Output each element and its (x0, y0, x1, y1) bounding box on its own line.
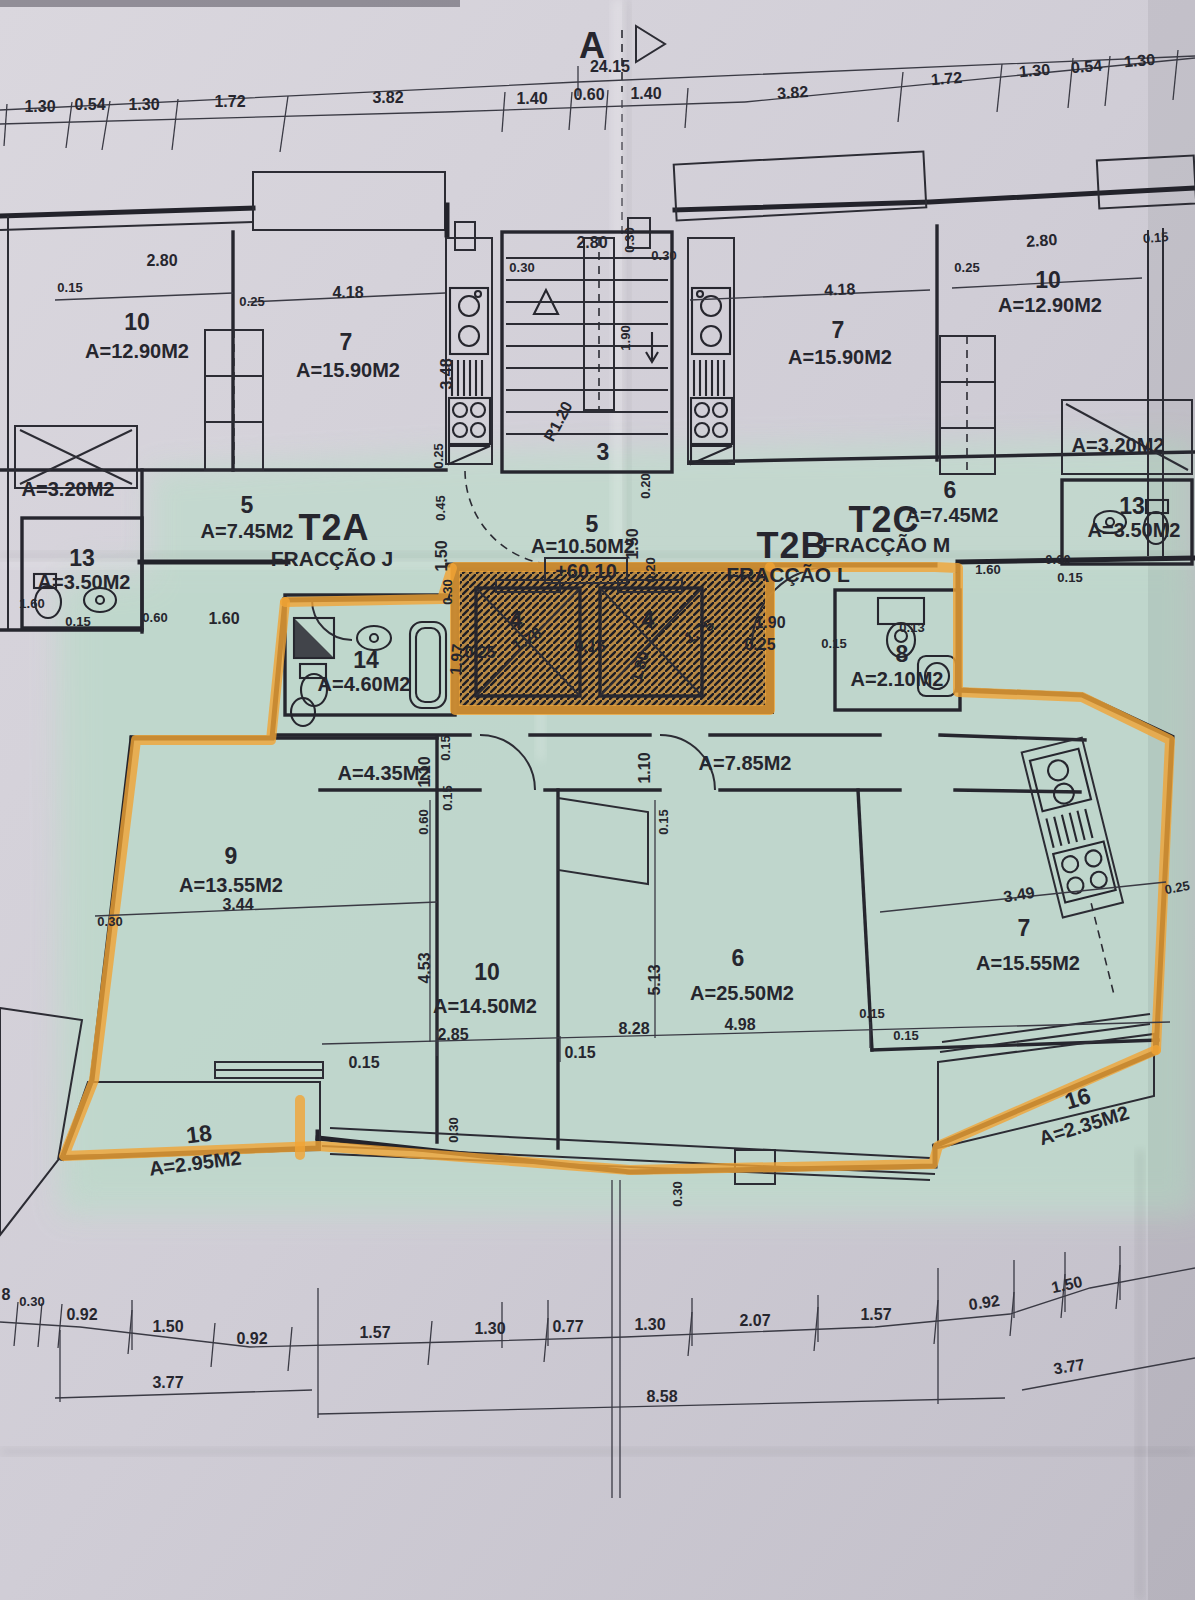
room-number: 14 (353, 647, 379, 673)
room-number: 5 (586, 511, 599, 537)
fraction-name: FRACÇÃO L (726, 563, 850, 586)
dim: 2.85 (437, 1026, 468, 1043)
dim: 0.15 (859, 1006, 884, 1021)
room-area: A=10.50M2 (531, 535, 635, 557)
dim: 0.15 (821, 636, 846, 651)
dim: 0.30 (509, 260, 534, 275)
room-area: A=7.85M2 (699, 752, 792, 774)
dim-total: 24.15 (590, 58, 630, 75)
room-area: A=2.10M2 (851, 668, 944, 690)
room-number: 4 (510, 607, 523, 633)
room-number: 10 (1035, 267, 1061, 293)
room-number: 7 (340, 329, 353, 355)
dim: 1.30 (474, 1320, 505, 1337)
room-number: 9 (225, 843, 238, 869)
fraction-code: T2B (756, 525, 827, 566)
room-number: 18 (185, 1120, 214, 1149)
dim: 0.15 (440, 785, 455, 810)
dim: 0.15 (348, 1054, 379, 1071)
dim: 0.13 (899, 620, 924, 635)
dim: 1.50 (152, 1318, 183, 1335)
floorplan-photo: A 24.15 1.30 0.54 1.30 1.72 3.82 1.40 0.… (0, 0, 1195, 1600)
room-number: 6 (944, 477, 957, 503)
dim: 1.30 (1018, 61, 1051, 81)
dim: 0.60 (1045, 552, 1070, 567)
dim: 1.72 (930, 69, 963, 89)
fraction-code: T2A (298, 507, 369, 548)
dim: 1.10 (416, 756, 433, 787)
dim: 0.60 (142, 610, 167, 625)
room-area: A=3.50M2 (1088, 519, 1181, 541)
dim: 0.30 (622, 227, 637, 252)
room-area: A=3.20M2 (22, 478, 115, 500)
room-number: 4 (642, 607, 655, 633)
room-number: 13 (69, 545, 95, 571)
dim: 0.25 (464, 644, 495, 661)
dim: 1.60 (208, 610, 239, 627)
room-number: 6 (732, 945, 745, 971)
floorplan-drawing: A 24.15 1.30 0.54 1.30 1.72 3.82 1.40 0.… (0, 0, 1195, 1600)
room-number: 7 (1018, 915, 1031, 941)
dim: 8.58 (646, 1388, 677, 1405)
room-area: A=13.55M2 (179, 874, 283, 896)
dim: 0.15 (1143, 229, 1169, 246)
dim: 1.30 (24, 98, 55, 115)
room-area: A=15.55M2 (976, 952, 1080, 974)
dim: 1.60 (975, 562, 1000, 577)
room-area: A=25.50M2 (690, 982, 794, 1004)
dim: 1.50 (624, 528, 641, 559)
dim: 0.15 (656, 809, 671, 834)
dim: 0.25 (744, 636, 775, 653)
dim: 1.60 (19, 596, 44, 611)
dim: 8 (2, 1286, 11, 1303)
dim: 1.40 (630, 85, 661, 102)
dim: 4.98 (724, 1016, 755, 1033)
dim: 0.92 (66, 1306, 97, 1323)
dim: 2.07 (739, 1312, 770, 1329)
room-area: A=12.90M2 (998, 294, 1102, 316)
dim: 0.15 (574, 638, 605, 655)
dim: 1.90 (754, 614, 785, 631)
room-area: A=15.90M2 (788, 346, 892, 368)
dim: 0.15 (893, 1028, 918, 1043)
dim: 1.30 (128, 96, 159, 113)
dim: 0.60 (416, 809, 431, 834)
fold-horizontal-bottom (0, 1448, 1195, 1455)
dim: 2.80 (1025, 231, 1057, 250)
dim: 1.10 (636, 752, 653, 783)
dim: 3.44 (222, 896, 253, 913)
dim: 0.20 (638, 473, 653, 498)
room-number: 8 (896, 641, 909, 667)
room-number: 5 (241, 492, 254, 518)
dim: 0.30 (97, 914, 122, 929)
fraction-name: FRACÇÃO J (271, 547, 394, 570)
room-area: A=4.60M2 (318, 673, 411, 695)
fraction-name: FRACÇÃO M (822, 533, 950, 556)
dim: 0.15 (1057, 570, 1082, 585)
dim: 4.18 (332, 284, 363, 301)
room-number: 7 (832, 317, 845, 343)
room-area: A=7.45M2 (906, 504, 999, 526)
dim: 1.97 (447, 643, 467, 676)
dim: 0.15 (438, 735, 453, 760)
dim: 5.13 (646, 964, 663, 995)
dim: 3.48 (438, 358, 455, 389)
room-area: A=7.45M2 (201, 520, 294, 542)
dim: 0.60 (573, 86, 604, 103)
dim: 0.30 (651, 248, 676, 263)
dim: 1.72 (214, 93, 245, 110)
dim: 0.15 (564, 1044, 595, 1061)
dim: 0.30 (446, 1117, 461, 1142)
dim: 0.25 (239, 294, 264, 309)
dim: 0.20 (643, 557, 658, 582)
dim: 0.15 (57, 280, 82, 295)
room-area: A=3.50M2 (38, 571, 131, 593)
dim: 3.77 (152, 1374, 183, 1391)
dim: 0.25 (954, 260, 979, 275)
fold-vertical-bottom-right (1136, 1150, 1144, 1600)
room-area: A=14.50M2 (433, 995, 537, 1017)
dim: 0.45 (433, 495, 448, 520)
room-number: 10 (124, 309, 150, 335)
dim: 0.54 (74, 96, 105, 113)
dim: 0.54 (1070, 57, 1103, 77)
dim: 1.57 (860, 1306, 891, 1323)
dim: 8.28 (618, 1020, 649, 1037)
dim: 3.82 (372, 89, 403, 106)
dim: 1.40 (516, 90, 547, 107)
dim: 1.30 (634, 1316, 665, 1333)
room-area: A=15.90M2 (296, 359, 400, 381)
dim: 0.30 (19, 1294, 44, 1309)
elevator-block (455, 567, 770, 710)
room-area: A=3.20M2 (1072, 434, 1165, 456)
dim: 4.18 (824, 280, 856, 299)
dim: 3.82 (776, 83, 808, 102)
dim: 2.80 (576, 234, 607, 251)
room-area: A=12.90M2 (85, 340, 189, 362)
dim: 4.53 (416, 952, 433, 983)
photo-edge (0, 0, 460, 7)
room-number: 10 (474, 959, 500, 985)
dim: 2.80 (146, 252, 177, 269)
dim: 0.77 (552, 1318, 583, 1335)
dim: 1.57 (359, 1324, 390, 1341)
dim: 0.92 (236, 1330, 267, 1347)
dim: 0.30 (440, 579, 455, 604)
level-mark: +60.10 (555, 560, 617, 582)
dim: 0.30 (670, 1181, 685, 1206)
dim: 1.30 (1123, 51, 1156, 71)
room-number: 13 (1119, 493, 1145, 519)
dim: 1.90 (618, 325, 633, 350)
dim: 0.15 (65, 614, 90, 629)
room-number: 3 (597, 439, 610, 465)
dim: 1.50 (433, 540, 450, 571)
dim: 0.25 (431, 443, 446, 468)
